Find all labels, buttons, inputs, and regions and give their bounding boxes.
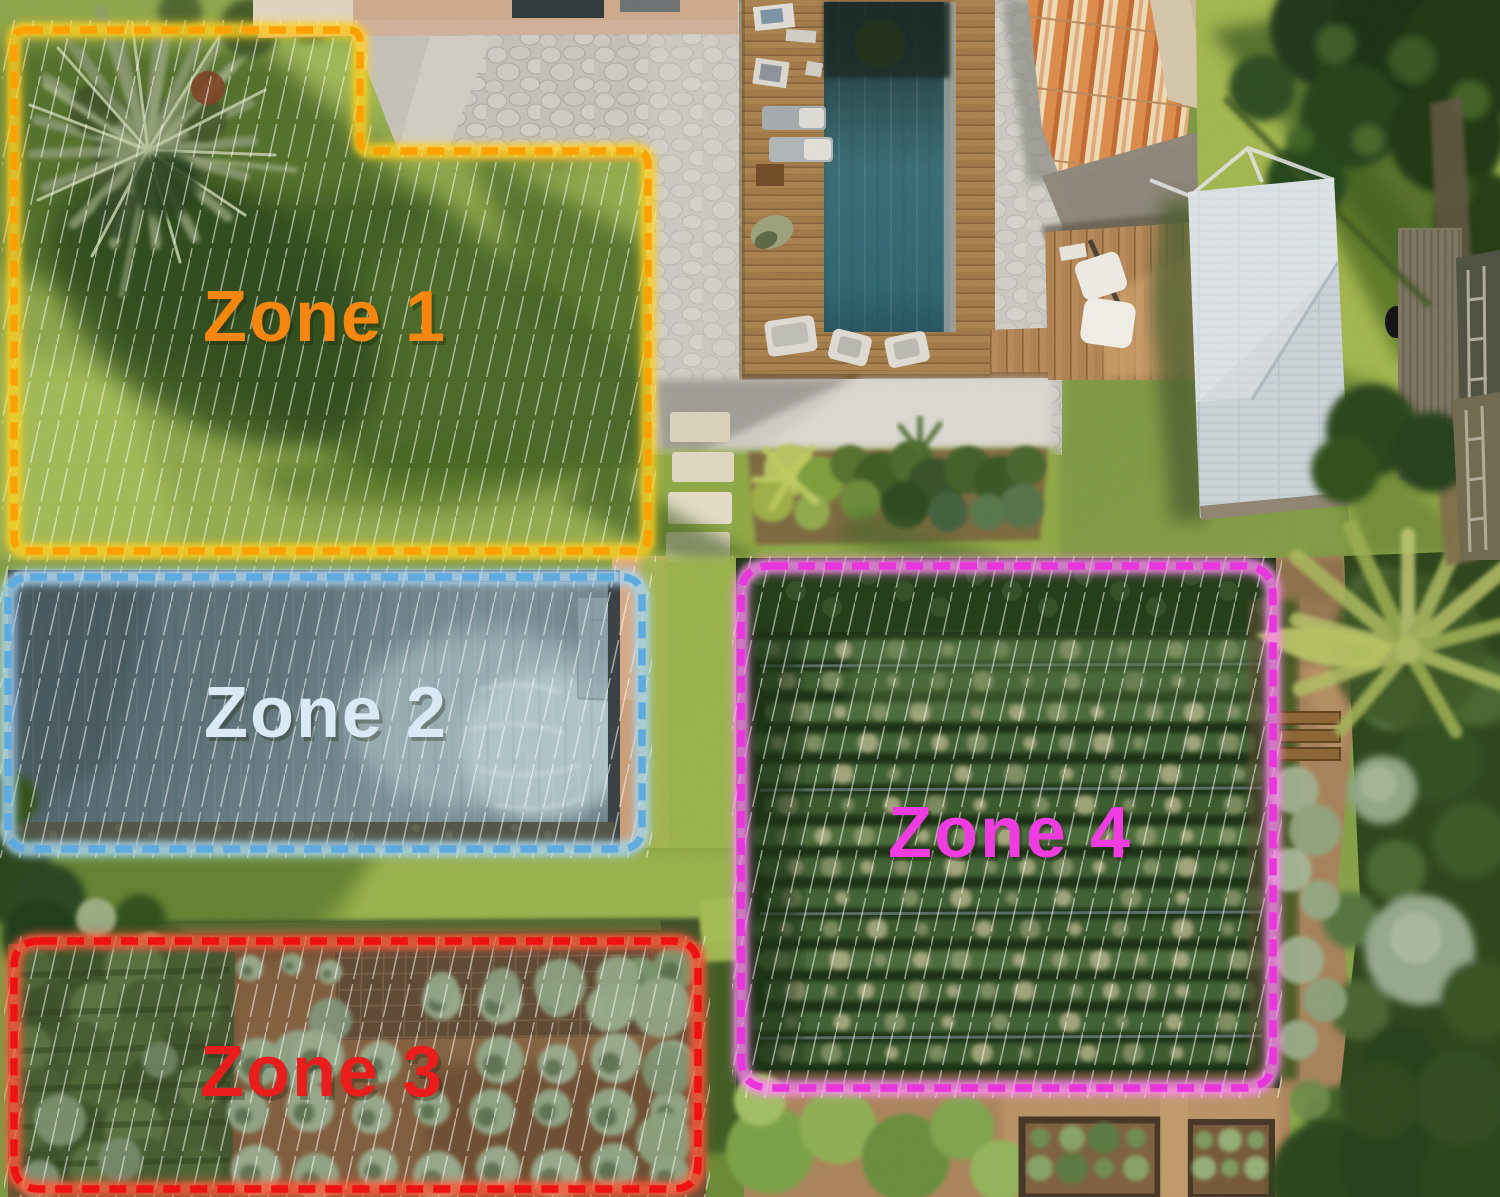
svg-text:Zone 3: Zone 3: [200, 1032, 444, 1112]
svg-text:Zone 1: Zone 1: [203, 277, 447, 357]
svg-text:Zone 4: Zone 4: [888, 793, 1132, 873]
svg-text:Zone 2: Zone 2: [204, 673, 448, 753]
